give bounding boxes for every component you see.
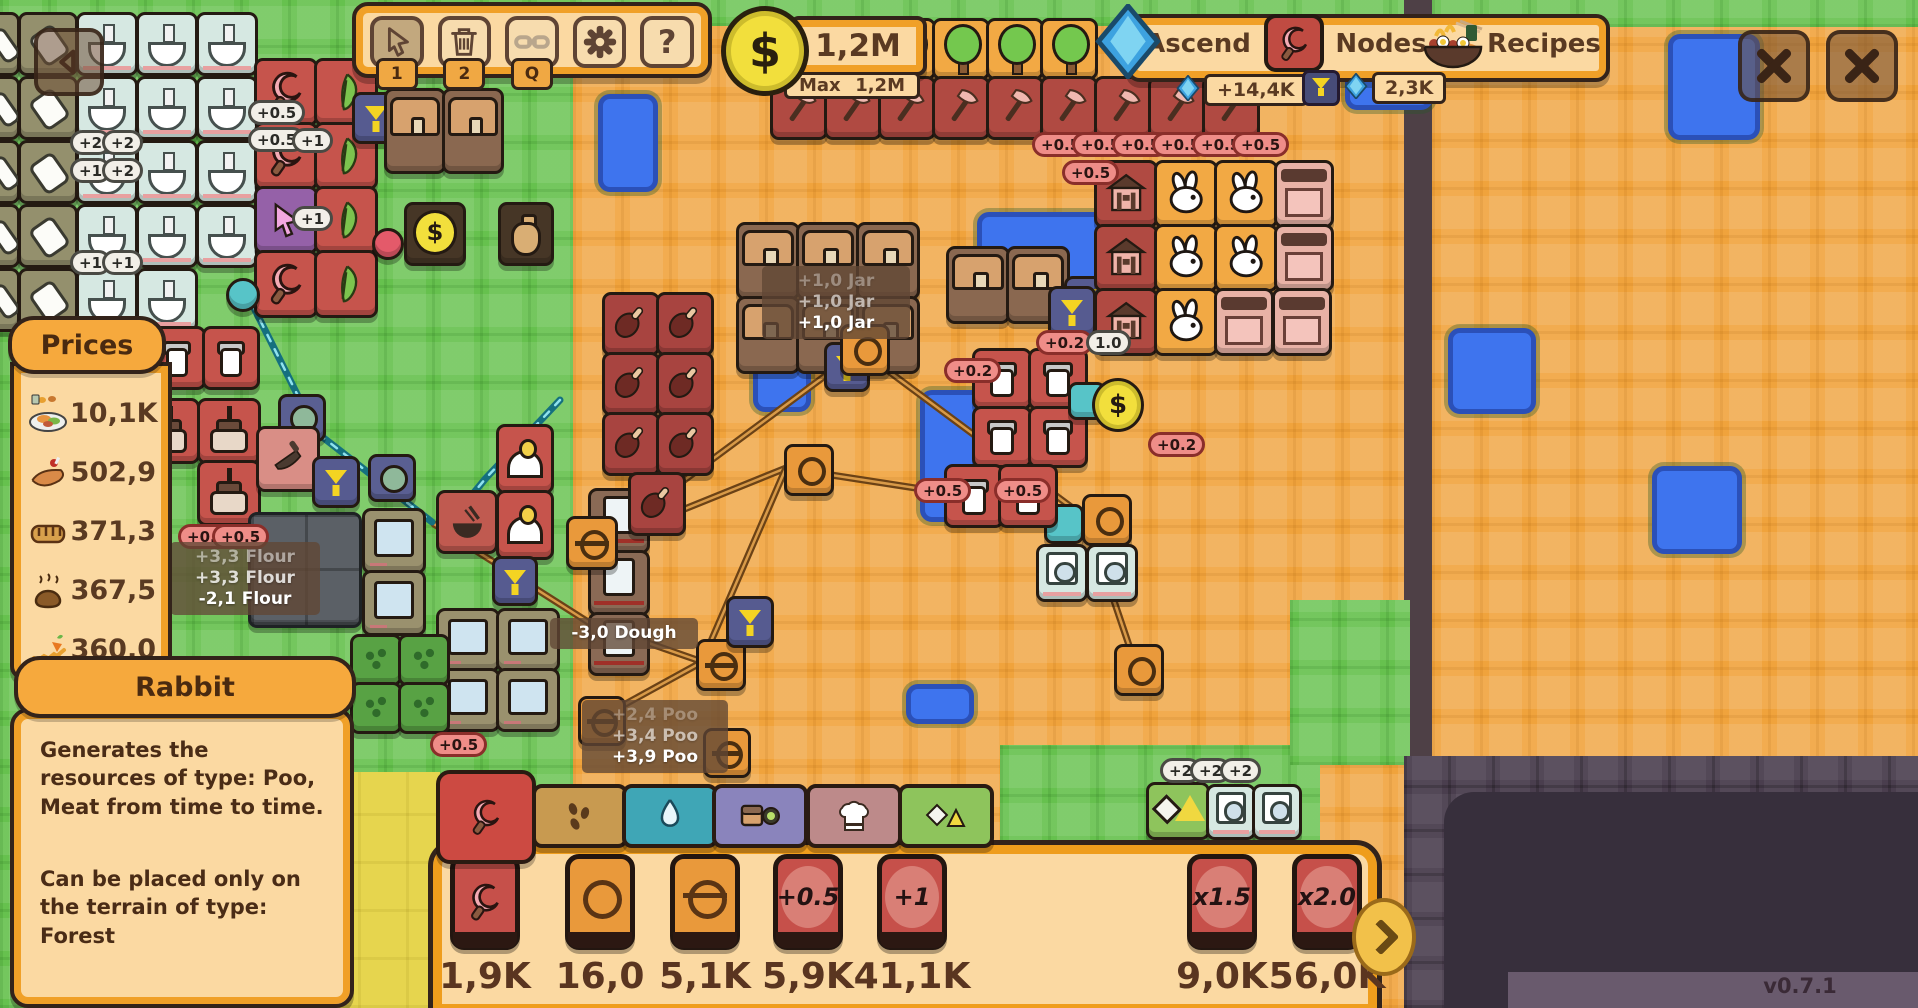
floating-text: +2,4 Poo+3,4 Poo+3,9 Poo [582, 700, 728, 773]
rabbit-meat-tile[interactable] [602, 412, 660, 476]
salt-tile[interactable] [0, 76, 20, 140]
knife-tile[interactable] [256, 426, 320, 492]
floating-text-line: +3,3 Flour [180, 547, 310, 568]
help-tool-button[interactable]: ? [640, 16, 694, 68]
gem-filter-badge: 2,3K [1302, 70, 1446, 106]
bread-icon [26, 510, 70, 554]
map-badge: +0.5 [248, 100, 305, 125]
map-badge: +1 [292, 128, 333, 153]
materials-tile[interactable] [1146, 782, 1210, 840]
red-orb[interactable] [372, 228, 404, 260]
rabbit-meat-tile[interactable] [656, 412, 714, 476]
back-button[interactable] [34, 28, 104, 96]
rabbit-tile[interactable] [1154, 160, 1218, 228]
floating-text: +3,3 Flour+3,3 Flour-2,1 Flour [170, 542, 320, 615]
floating-text-line: +1,0 Jar [772, 292, 900, 313]
salt-tile[interactable] [18, 140, 78, 204]
chevron-right-icon [1363, 919, 1400, 956]
seller-funnel-tile[interactable] [726, 596, 774, 648]
brewer-tile[interactable] [196, 140, 258, 204]
rabbit-tile[interactable] [1154, 288, 1218, 356]
sickle-tile[interactable] [254, 250, 318, 318]
axe-tile[interactable] [986, 76, 1044, 140]
washer-tile[interactable] [1036, 544, 1088, 602]
toolbar: 12Q? [352, 2, 712, 78]
prices-panel-title: Prices [8, 316, 166, 374]
tree-tile[interactable] [986, 18, 1044, 80]
bush-tile[interactable] [398, 682, 450, 734]
rope-node-tile[interactable] [1082, 494, 1132, 546]
wheat-tile[interactable] [314, 250, 378, 318]
meal-icon [26, 392, 70, 436]
map-badge: +0.2 [1036, 330, 1093, 355]
map-badge: +1 [102, 250, 143, 275]
shop-tab-water-drop[interactable] [622, 784, 718, 848]
floating-text-line: +3,9 Poo [592, 747, 718, 768]
map-badge: +2 [102, 130, 143, 155]
teal-orb[interactable] [226, 278, 260, 312]
salt-tile[interactable] [0, 12, 20, 76]
jar-tile[interactable] [972, 406, 1032, 468]
tree-tile[interactable] [1040, 18, 1098, 80]
brewer-tile[interactable] [136, 140, 198, 204]
rabbit-info-title: Rabbit [14, 656, 356, 718]
coin-button[interactable]: $ [1092, 378, 1144, 432]
seller-funnel-tile[interactable] [492, 556, 538, 606]
game-viewport: $$ +0.5+0.5+2+2+1+2+1+1+1+1+0.5+0.5+0.5+… [0, 0, 1918, 1008]
window-tile[interactable] [362, 570, 426, 636]
floating-text-line: +1,0 Jar [772, 313, 900, 334]
gem-rate-value: +14,4K [1204, 74, 1308, 106]
window-tile[interactable] [362, 508, 426, 574]
cabinet-tile[interactable] [1274, 160, 1334, 228]
coin-tile[interactable]: $ [404, 202, 466, 266]
rabbit-info-paragraph-1: Generates the resources of type: Poo, Me… [40, 736, 324, 821]
delete-tool-button[interactable]: 2 [438, 16, 492, 68]
rabbit-meat-tile[interactable] [656, 292, 714, 356]
rabbit-tile[interactable] [1214, 160, 1278, 228]
map-badge: +0.5 [994, 478, 1051, 503]
rabbit-meat-tile[interactable] [602, 352, 660, 416]
floating-text: +1,0 Jar+1,0 Jar+1,0 Jar [762, 266, 910, 339]
floating-text: -3,0 Dough [550, 618, 698, 649]
select-tool-button[interactable]: 1 [370, 16, 424, 68]
chest-tile[interactable] [442, 88, 504, 174]
salt-tile[interactable] [0, 140, 20, 204]
map-badge: +2 [1220, 758, 1261, 783]
price-value: 367,5 [70, 575, 156, 606]
map-badge: +0.2 [1148, 432, 1205, 457]
money-max-label: Max [799, 75, 841, 96]
shop-item[interactable] [450, 854, 520, 950]
chest-tile[interactable] [384, 88, 446, 174]
shop-tab-chef-hat[interactable] [806, 784, 902, 848]
shop-tab-seeds[interactable] [532, 784, 628, 848]
shop-item-price: 41,1K [847, 956, 977, 997]
rabbit-info-panel: Generates the resources of type: Poo, Me… [10, 708, 354, 1008]
gem-icon [1094, 4, 1162, 83]
close-button-2[interactable] [1826, 30, 1898, 102]
brewer-tile[interactable] [196, 12, 258, 76]
rabbit-info-paragraph-2: Can be placed only on the terrain of typ… [40, 865, 324, 950]
egg-dish-tile[interactable] [496, 424, 554, 494]
chest-tile[interactable] [946, 246, 1010, 324]
rabbit-hutch-tile[interactable] [1094, 224, 1158, 292]
floating-text-line: +1,0 Jar [772, 271, 900, 292]
map-badge: +0.5 [1232, 132, 1289, 157]
shop-item[interactable] [670, 854, 740, 950]
shop-tab-materials[interactable] [898, 784, 994, 848]
mixing-bowl-tile[interactable] [436, 490, 498, 554]
shop-tab-chest[interactable] [712, 784, 808, 848]
shop-item[interactable] [565, 854, 635, 950]
floating-text-line: -3,0 Dough [560, 623, 688, 644]
cabinet-tile[interactable] [1214, 288, 1274, 356]
tree-tile[interactable] [932, 18, 990, 80]
axe-tile[interactable] [1040, 76, 1098, 140]
salt-tile[interactable] [18, 204, 78, 268]
money-coin-icon: $ [721, 6, 809, 96]
gem-rate-badge: +14,4K [1176, 74, 1308, 106]
grinder-tile[interactable] [197, 398, 261, 464]
poo-icon [26, 569, 70, 613]
cabinet-tile[interactable] [1272, 288, 1332, 356]
gem-icon [1176, 75, 1200, 105]
window-tile[interactable] [496, 668, 560, 732]
rabbit-meat-tile[interactable] [602, 292, 660, 356]
price-row: 371,3 [14, 502, 168, 561]
price-row: 10,1K [14, 384, 168, 443]
rabbit-tile[interactable] [1154, 224, 1218, 292]
shop-item-price: 1,9K [420, 956, 550, 997]
bush-tile[interactable] [350, 682, 402, 734]
washer-tile[interactable] [1086, 544, 1138, 602]
shop-next-page-button[interactable] [1352, 898, 1416, 976]
price-row: 367,5 [14, 561, 168, 620]
ramen-bowl-icon [1418, 18, 1488, 78]
splitter-tile[interactable] [566, 516, 618, 570]
shop-item[interactable]: +0.5 [773, 854, 843, 950]
brewer-tile[interactable] [136, 204, 198, 268]
brewer-tile[interactable] [196, 204, 258, 268]
money-bag-tile[interactable] [498, 202, 554, 266]
shop-tab-sickle[interactable] [436, 770, 536, 864]
egg-dish-tile[interactable] [496, 490, 554, 560]
map-badge: +0.5 [1062, 160, 1119, 185]
recipes-button[interactable]: Recipes [1488, 18, 1600, 70]
brewer-tile[interactable] [136, 76, 198, 140]
price-value: 371,3 [70, 516, 156, 547]
rope-node-tile[interactable] [1114, 644, 1164, 696]
close-button-1[interactable] [1738, 30, 1810, 102]
price-value: 10,1K [70, 398, 158, 429]
rabbit-meat-tile[interactable] [628, 472, 686, 536]
funnel-icon [1302, 70, 1340, 106]
back-arrow-icon [52, 45, 86, 79]
floating-text-line: +3,4 Poo [592, 726, 718, 747]
gem-icon [1344, 73, 1368, 103]
axe-tile[interactable] [1094, 76, 1152, 140]
rabbit-meat-tile[interactable] [656, 352, 714, 416]
hotkey-badge: Q [511, 58, 553, 90]
version-label: v0.7.1 [1700, 974, 1900, 998]
axe-tile[interactable] [932, 76, 990, 140]
bush-tile[interactable] [350, 634, 402, 686]
map-badge: +0.2 [944, 358, 1001, 383]
shop-item[interactable]: x1.5 [1187, 854, 1257, 950]
money-max-value: 1,2M [855, 75, 905, 96]
rabbit-tile[interactable] [1214, 224, 1278, 292]
jar-tile[interactable] [202, 326, 260, 390]
hotkey-badge: 1 [376, 58, 418, 90]
map-badge: +0.5 [430, 732, 487, 757]
prices-panel: 10,1K502,9371,3367,5360,0 [10, 362, 172, 680]
hotkey-badge: 2 [443, 58, 485, 90]
money-amount: 1,2M [789, 16, 927, 76]
map-badge: +2 [102, 158, 143, 183]
meat-icon [26, 451, 70, 495]
path-node-tile[interactable] [368, 454, 416, 502]
price-row: 502,9 [14, 443, 168, 502]
salt-tile[interactable] [0, 204, 20, 268]
rope-node-tile[interactable] [784, 444, 834, 496]
gem-filter-value: 2,3K [1372, 72, 1446, 104]
money-max: Max 1,2M [784, 72, 920, 99]
bush-tile[interactable] [398, 634, 450, 686]
map-badge: 1.0 [1086, 330, 1131, 355]
cabinet-tile[interactable] [1274, 224, 1334, 292]
brewer-tile[interactable] [136, 12, 198, 76]
shop-item[interactable]: +1 [877, 854, 947, 950]
link-tool-button[interactable]: Q [505, 16, 559, 68]
floating-text-line: +3,3 Flour [180, 568, 310, 589]
washer-tile[interactable] [1206, 784, 1256, 840]
floating-text-line: +2,4 Poo [592, 705, 718, 726]
floating-text-line: -2,1 Flour [180, 589, 310, 610]
sickle-resource-icon [1264, 14, 1324, 72]
map-badge: +1 [292, 206, 333, 231]
map-badge: +0.5 [914, 478, 971, 503]
price-value: 502,9 [70, 457, 156, 488]
seller-funnel-tile[interactable] [312, 456, 360, 508]
settings-tool-button[interactable] [573, 16, 627, 68]
washer-tile[interactable] [1252, 784, 1302, 840]
